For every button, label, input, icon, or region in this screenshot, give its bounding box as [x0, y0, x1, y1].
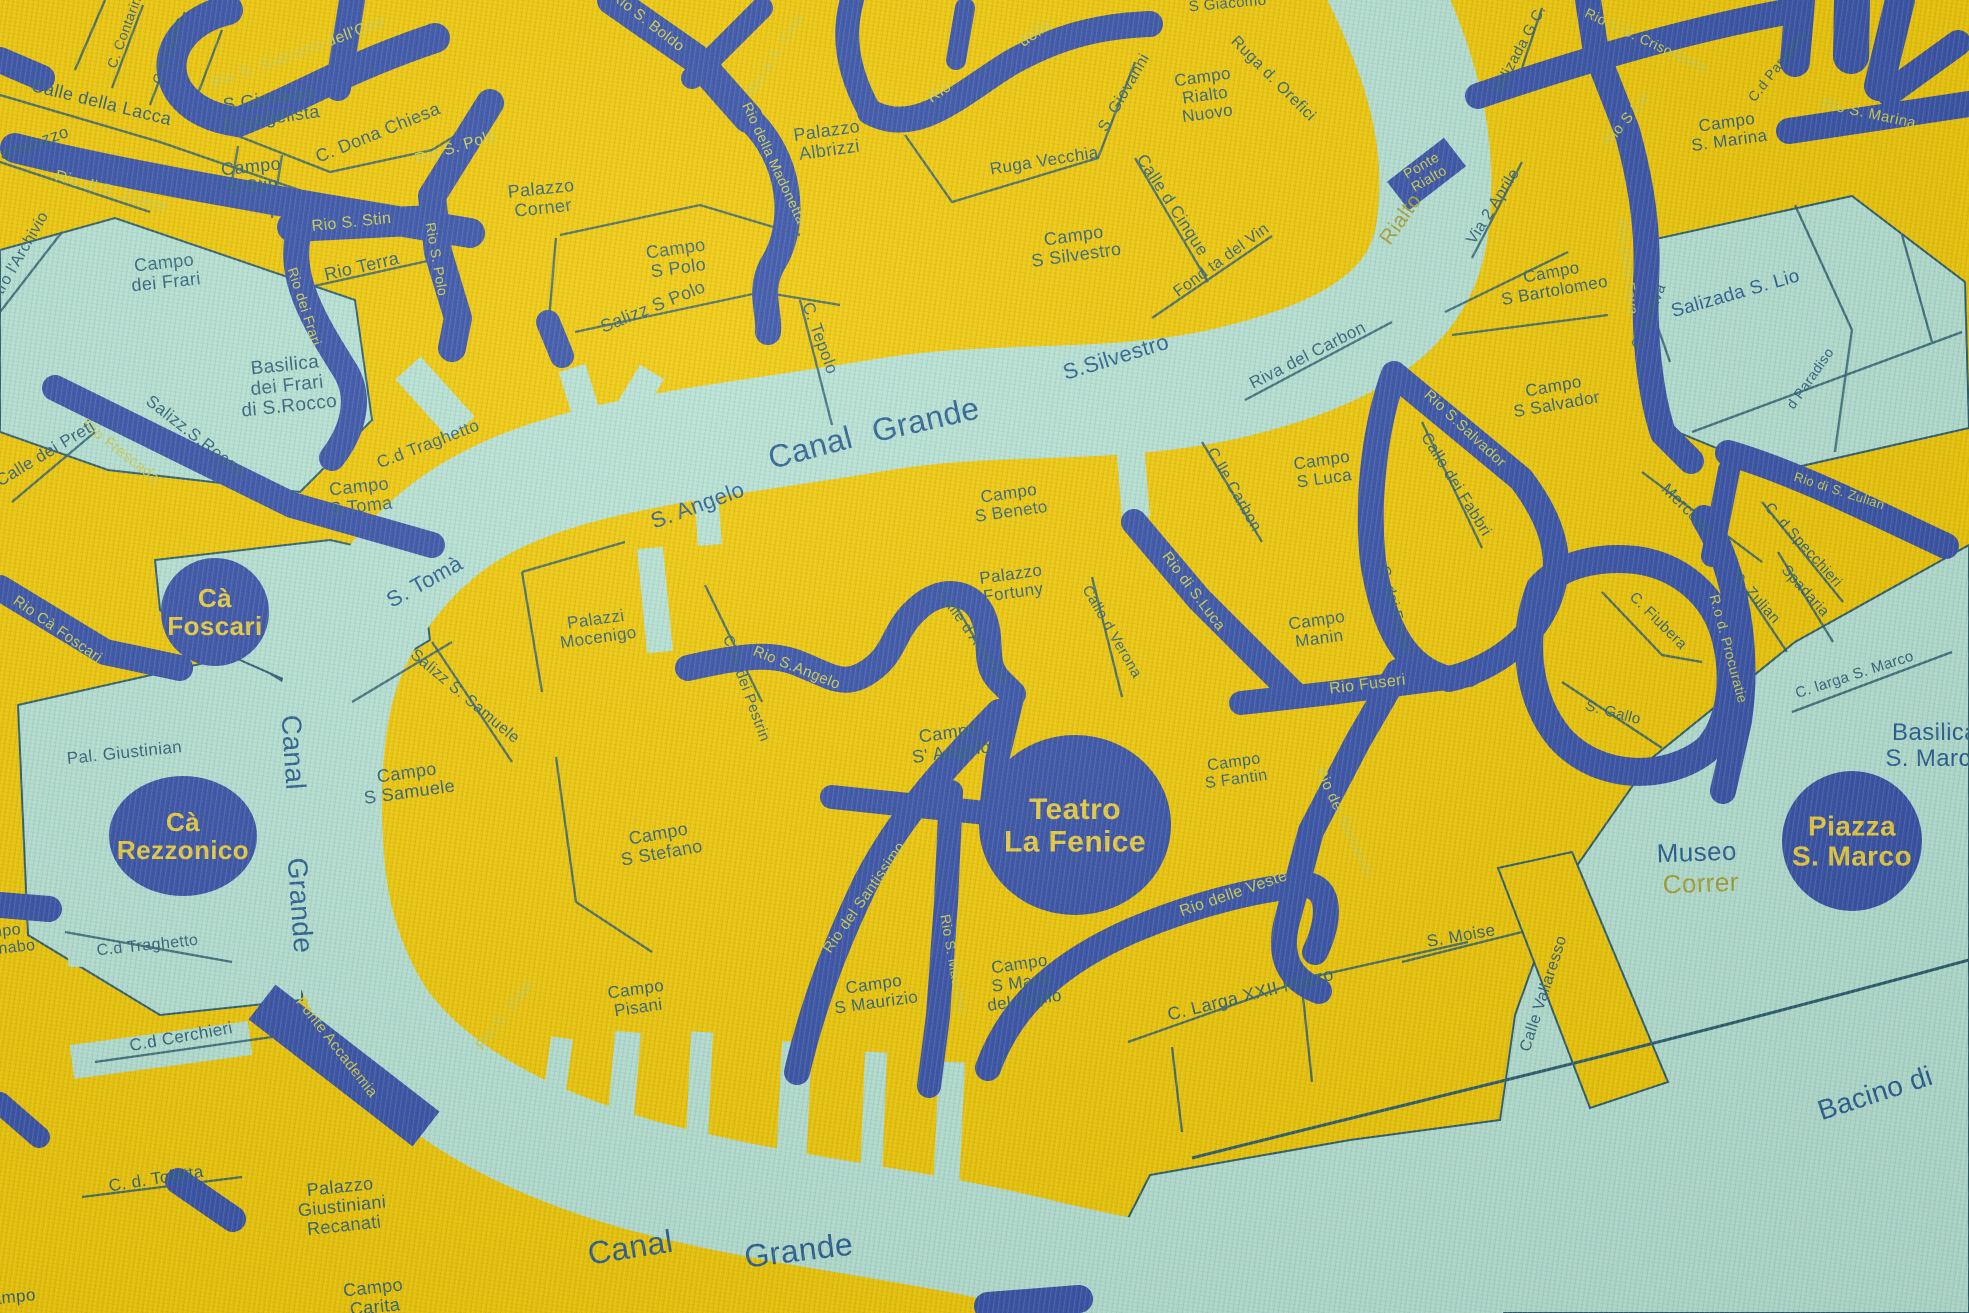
calle-strip: [946, 1062, 952, 1192]
map-canvas: CàFoscariCàRezzonicoTeatroLa FenicePiazz…: [0, 0, 1969, 1313]
street-label: CampoS Polo: [645, 234, 710, 281]
rio-canal: [548, 322, 562, 356]
street-label: CampoS Luca: [1292, 447, 1353, 492]
calle-strip: [1130, 442, 1136, 518]
street-label: Campodei Frari: [128, 249, 201, 296]
calle-strip: [871, 1052, 876, 1177]
rio-canal: [0, 905, 49, 909]
street-label: CampoRialtoNuovo: [1173, 64, 1237, 127]
venice-fabric-map: CàFoscariCàRezzonicoTeatroLa FenicePiazz…: [0, 0, 1969, 1313]
calle-strip: [696, 1032, 702, 1162]
rio-canal: [988, 1299, 1079, 1306]
canal-label: BasilicaS. Marco: [1885, 719, 1969, 772]
calle-strip: [618, 1032, 628, 1152]
canal-label: Canal: [275, 714, 311, 791]
canal-label: Museo: [1656, 836, 1737, 869]
street-label: CampoS Stin: [220, 153, 284, 198]
rio-canal: [1851, 0, 1852, 56]
street-label: CampoCarita: [342, 1274, 406, 1313]
street-label: CampoManin: [1287, 607, 1348, 652]
street-label: CampoPisani: [606, 976, 667, 1021]
rio-canal: [956, 8, 965, 60]
calle-strip: [548, 1038, 562, 1142]
street-label: PalazzoCorner: [507, 175, 578, 221]
olive-label: Correr: [1662, 867, 1739, 900]
street-label: CampoS Toma: [327, 473, 394, 519]
calle-strip: [650, 548, 660, 652]
landmark-label: PiazzaS. Marco: [1792, 810, 1912, 871]
